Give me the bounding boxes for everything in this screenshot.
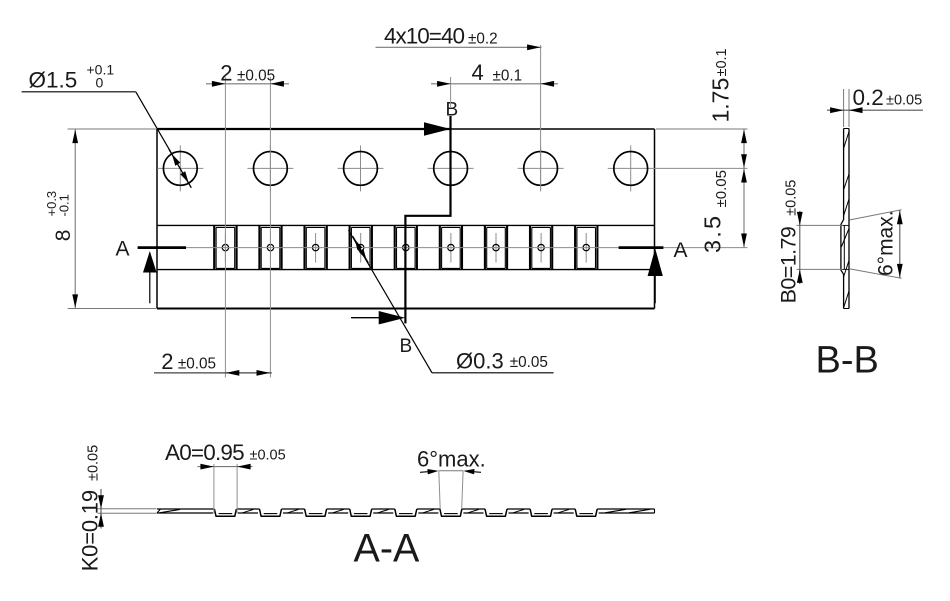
svg-text:6°max.: 6°max. (417, 447, 486, 472)
svg-text:8: 8 (52, 230, 75, 242)
svg-text:±0.2: ±0.2 (468, 31, 498, 48)
svg-text:±0.05: ±0.05 (784, 180, 800, 216)
svg-text:K0=0.19: K0=0.19 (78, 490, 103, 571)
svg-text:B: B (446, 100, 459, 121)
svg-text:Ø0.3: Ø0.3 (456, 348, 504, 373)
svg-text:6°max.: 6°max. (875, 210, 898, 276)
svg-text:0.2: 0.2 (853, 85, 884, 110)
svg-text:4: 4 (472, 60, 484, 85)
svg-text:±0.05: ±0.05 (713, 170, 730, 207)
svg-text:±0.05: ±0.05 (510, 354, 548, 371)
svg-text:-0.1: -0.1 (57, 194, 72, 216)
svg-text:±0.05: ±0.05 (250, 448, 286, 464)
svg-text:A0=0.95: A0=0.95 (165, 440, 244, 465)
svg-text:±0.1: ±0.1 (493, 67, 523, 84)
svg-text:2: 2 (161, 349, 173, 374)
svg-text:Ø1.5: Ø1.5 (29, 68, 78, 93)
svg-text:A: A (674, 239, 688, 262)
svg-text:B: B (400, 336, 413, 357)
svg-text:±0.1: ±0.1 (714, 48, 730, 76)
svg-text:A-A: A-A (354, 527, 421, 571)
svg-text:±0.05: ±0.05 (85, 445, 101, 481)
svg-text:±0.05: ±0.05 (237, 67, 275, 84)
svg-text:A: A (116, 238, 130, 261)
svg-text:1.75: 1.75 (708, 78, 734, 123)
svg-text:B0=1.79: B0=1.79 (777, 227, 801, 304)
svg-text:2: 2 (220, 60, 232, 85)
svg-text:4x10=40: 4x10=40 (384, 24, 464, 49)
svg-text:3.5: 3.5 (700, 214, 726, 253)
svg-text:±0.05: ±0.05 (178, 356, 216, 373)
svg-text:±0.05: ±0.05 (886, 93, 922, 109)
svg-text:B-B: B-B (816, 340, 879, 382)
svg-text:0: 0 (96, 75, 104, 91)
